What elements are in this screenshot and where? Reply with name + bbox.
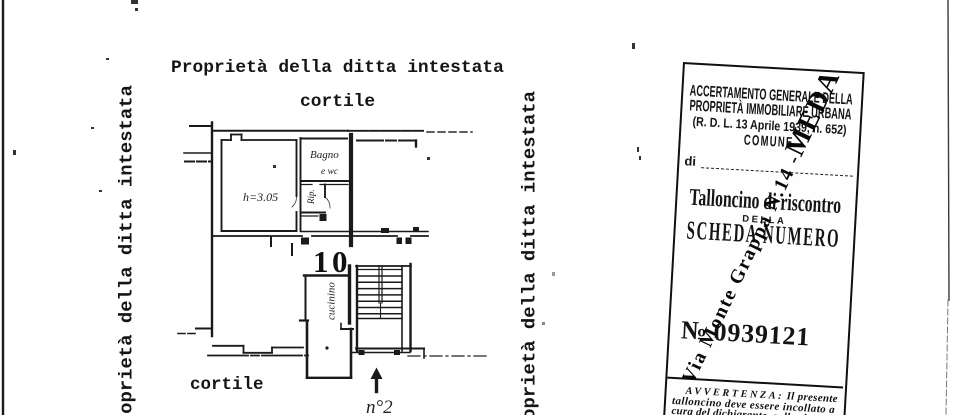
svg-text:cortile: cortile: [190, 375, 264, 395]
svg-text:h=3.05: h=3.05: [243, 190, 278, 204]
svg-text:10: 10: [313, 244, 351, 279]
svg-text:Proprietà della ditta intestat: Proprietà della ditta intestata: [519, 91, 541, 415]
svg-text:cucinino: cucinino: [326, 282, 338, 320]
svg-text:e wc: e wc: [321, 167, 339, 177]
svg-text:Proprietà della ditta intestat: Proprietà della ditta intestata: [171, 58, 504, 78]
svg-text:Bagno: Bagno: [310, 149, 339, 161]
svg-text:Rip.: Rip.: [306, 189, 316, 205]
svg-text:Proprietà della ditta intestat: Proprietà della ditta intestata: [116, 85, 138, 415]
svg-text:cortile: cortile: [300, 92, 375, 112]
svg-text:n°2: n°2: [366, 397, 393, 415]
